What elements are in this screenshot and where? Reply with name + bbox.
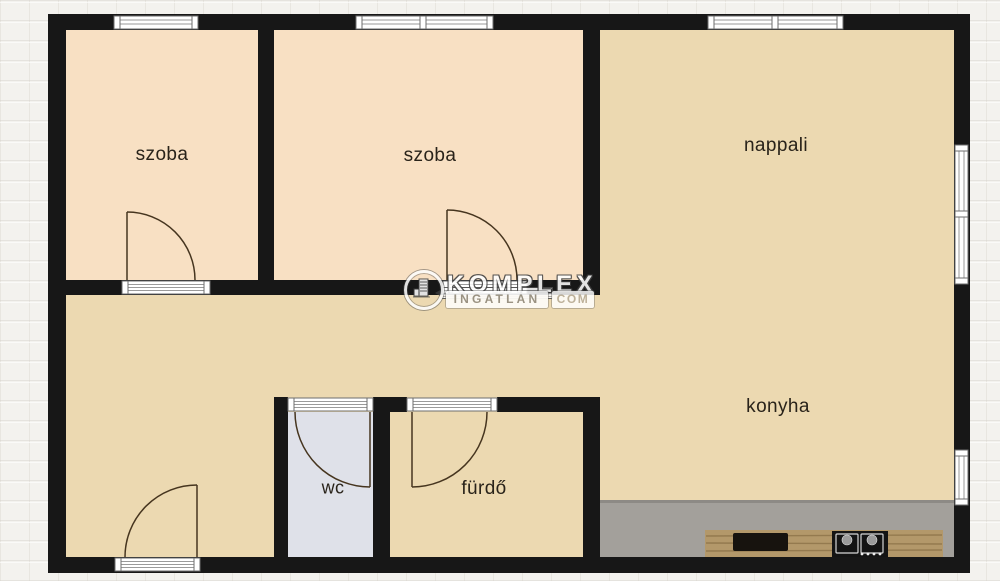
room-label-konyha: konyha <box>746 396 810 418</box>
door-opening-wc <box>288 398 373 411</box>
wall-szoba2-nappali <box>583 30 600 295</box>
window-szoba-2 <box>356 16 493 29</box>
wall-furdo-konyha <box>583 397 600 573</box>
door-opening-szoba-2 <box>443 281 527 294</box>
window-szoba-1 <box>114 16 198 29</box>
floor-plan-canvas: szoba szoba nappali konyha wc fürdő K <box>0 0 1000 581</box>
cooktop <box>832 531 888 558</box>
door-opening-entrance <box>115 558 200 571</box>
door-opening-szoba-1 <box>122 281 210 294</box>
room-label-nappali: nappali <box>744 135 808 157</box>
wall-wc-left <box>274 397 288 573</box>
wall-szoba1-szoba2 <box>258 30 274 295</box>
wall-wcblock-top-mid <box>373 397 407 412</box>
window-nappali-right <box>955 145 968 284</box>
countertop-edge <box>600 500 954 503</box>
room-nappali-konyha-floor <box>600 30 954 557</box>
window-konyha-right <box>955 450 968 505</box>
door-opening-furdo <box>407 398 497 411</box>
wall-wcblock-top-right <box>497 397 583 412</box>
room-label-szoba-1: szoba <box>136 144 189 166</box>
wall-wc-furdo <box>373 397 390 573</box>
kitchen-counter <box>600 500 954 558</box>
sink-basin <box>733 533 788 551</box>
room-label-wc: wc <box>322 478 345 499</box>
room-label-furdo: fürdő <box>461 478 506 500</box>
window-nappali-top <box>708 16 843 29</box>
room-label-szoba-2: szoba <box>404 145 457 167</box>
